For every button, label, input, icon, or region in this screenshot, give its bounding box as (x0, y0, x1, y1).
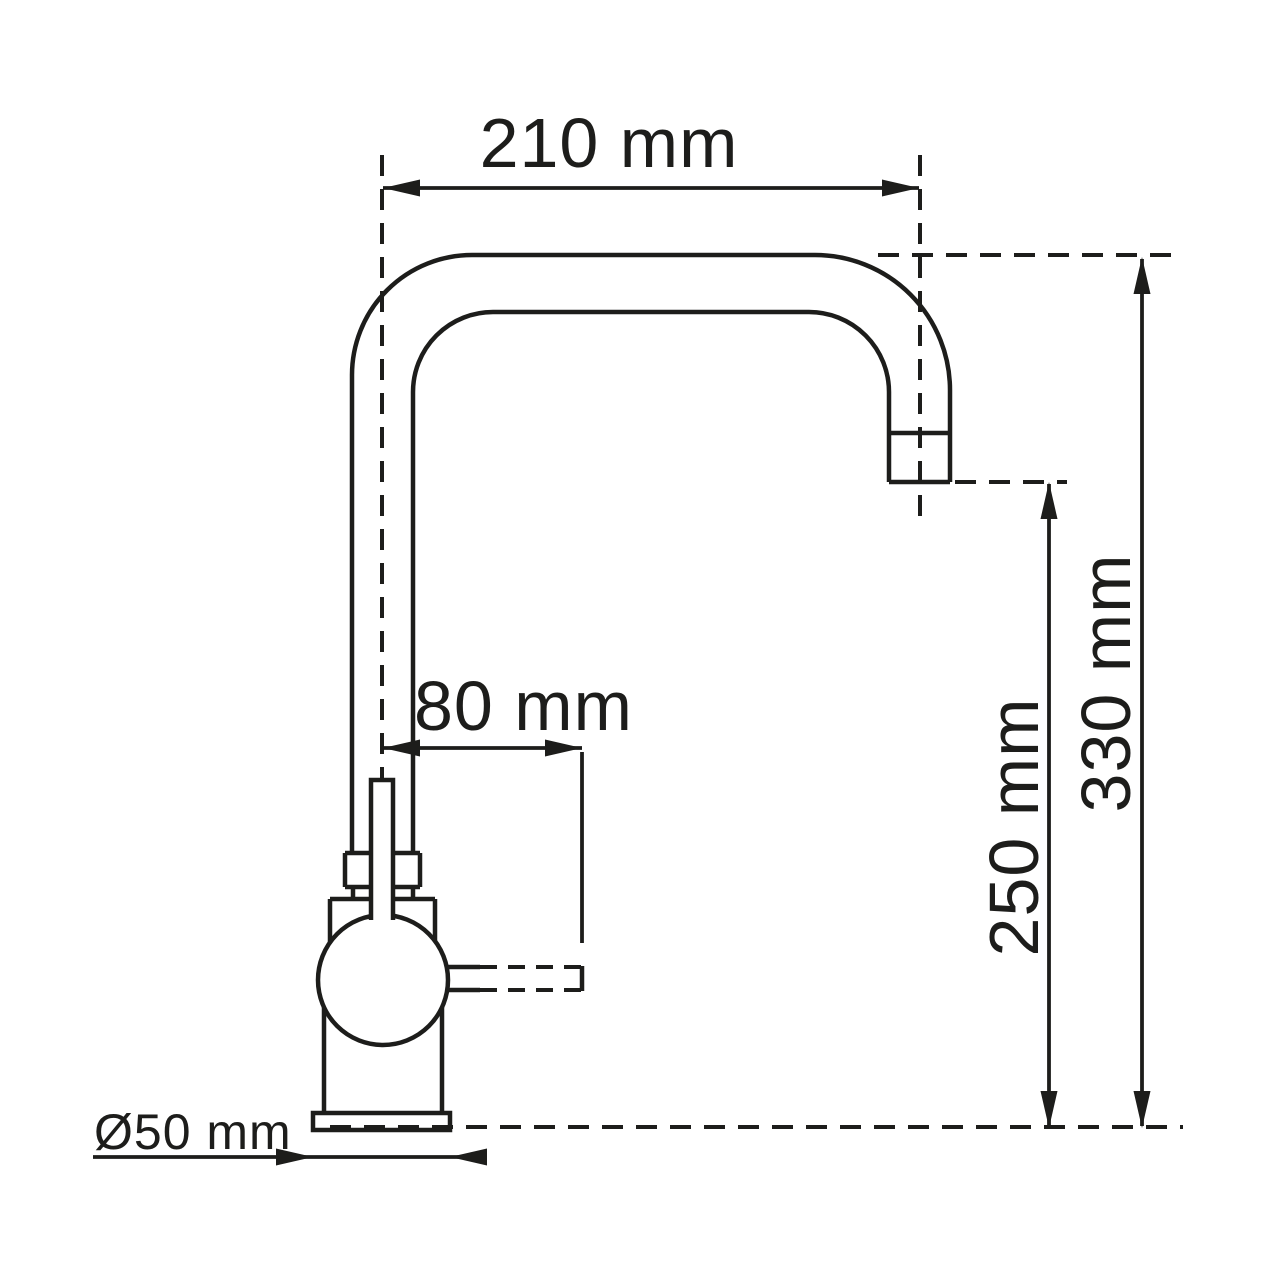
spout-inner-outline (413, 312, 889, 853)
dimension-overall-height: 330 mm (1067, 257, 1151, 1128)
label-outlet-height: 250 mm (975, 698, 1053, 957)
handle-lever-dashed (480, 967, 582, 990)
handle-lever-start (447, 967, 480, 990)
drawing-canvas: 210 mm 80 mm 250 mm 330 mm (0, 0, 1280, 1280)
cartridge-stem (371, 780, 393, 920)
label-overall-height: 330 mm (1067, 554, 1145, 813)
dim-330-arrow-bottom (1134, 1091, 1151, 1128)
label-base-diameter: Ø50 mm (94, 1104, 292, 1160)
dimension-outlet-height: 250 mm (975, 482, 1058, 1128)
label-handle-reach: 80 mm (414, 667, 633, 745)
spout-outer-outline (352, 255, 950, 853)
dim-250-arrow-top (1041, 482, 1058, 519)
dim-330-arrow-top (1134, 257, 1151, 294)
label-spout-reach: 210 mm (480, 104, 739, 182)
dim-50-arrow-right (450, 1149, 487, 1166)
dim-210-arrow-right (882, 180, 919, 197)
dimension-handle-reach: 80 mm (383, 667, 633, 943)
valve-body-circle (318, 915, 448, 1045)
faucet-dimension-diagram: 210 mm 80 mm 250 mm 330 mm (0, 0, 1280, 1280)
dim-250-arrow-bottom (1041, 1091, 1058, 1128)
dim-210-arrow-left (383, 180, 420, 197)
dimension-spout-reach: 210 mm (383, 104, 919, 197)
